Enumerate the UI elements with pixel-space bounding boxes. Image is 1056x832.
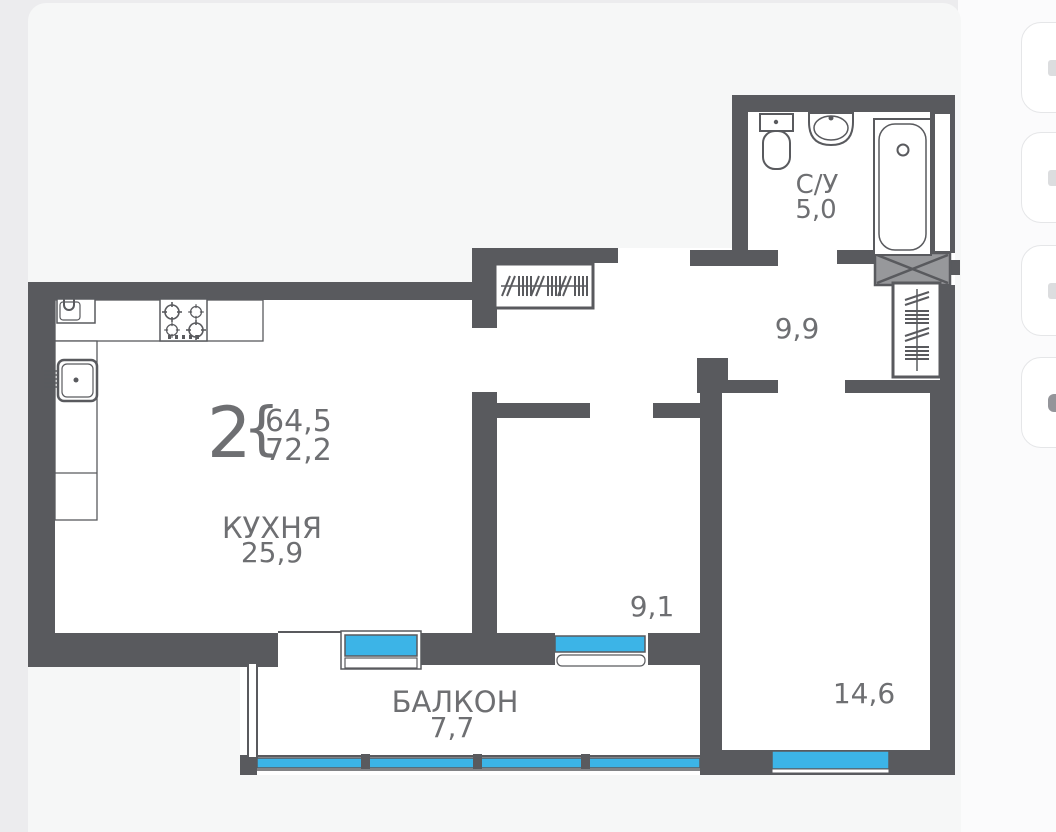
floorplan-svg: 2 { 64,5 72,2 КУХНЯ 25,9 С/У 5,0 9,9 9,1… bbox=[0, 0, 1056, 832]
balcony-area: 7,7 bbox=[430, 711, 475, 744]
wardrobe-symbol-hall bbox=[495, 264, 593, 308]
cropped-icon bbox=[1048, 283, 1056, 299]
cropped-icon bbox=[1048, 394, 1056, 412]
side-button-3[interactable] bbox=[1021, 245, 1056, 336]
exterior-window-band bbox=[935, 114, 950, 251]
ventilation-shaft-symbol bbox=[875, 253, 950, 285]
side-button-4[interactable] bbox=[1021, 357, 1056, 448]
sink-symbol-bathroom bbox=[809, 113, 853, 145]
window-bedroom-balcony bbox=[555, 636, 645, 666]
bedroom-area: 9,1 bbox=[630, 590, 675, 623]
toilet-symbol bbox=[760, 114, 793, 169]
stove-symbol bbox=[160, 299, 207, 341]
bathroom-area: 5,0 bbox=[795, 195, 836, 225]
area-total: 72,2 bbox=[265, 433, 332, 468]
living-area: 14,6 bbox=[833, 677, 895, 710]
sink-symbol-kitchen-top bbox=[57, 294, 95, 323]
kitchen-area: 25,9 bbox=[241, 536, 303, 569]
side-button-2[interactable] bbox=[1021, 132, 1056, 223]
page: 2 { 64,5 72,2 КУХНЯ 25,9 С/У 5,0 9,9 9,1… bbox=[0, 0, 1056, 832]
cropped-icon bbox=[1048, 60, 1056, 76]
cropped-icon bbox=[1048, 170, 1056, 186]
window-living-room bbox=[772, 751, 889, 773]
window-kitchen-balcony bbox=[341, 631, 421, 669]
wardrobe-symbol-right bbox=[893, 283, 940, 377]
hallway-area: 9,9 bbox=[775, 312, 820, 345]
bathtub-symbol bbox=[874, 119, 931, 255]
side-button-1[interactable] bbox=[1021, 22, 1056, 113]
